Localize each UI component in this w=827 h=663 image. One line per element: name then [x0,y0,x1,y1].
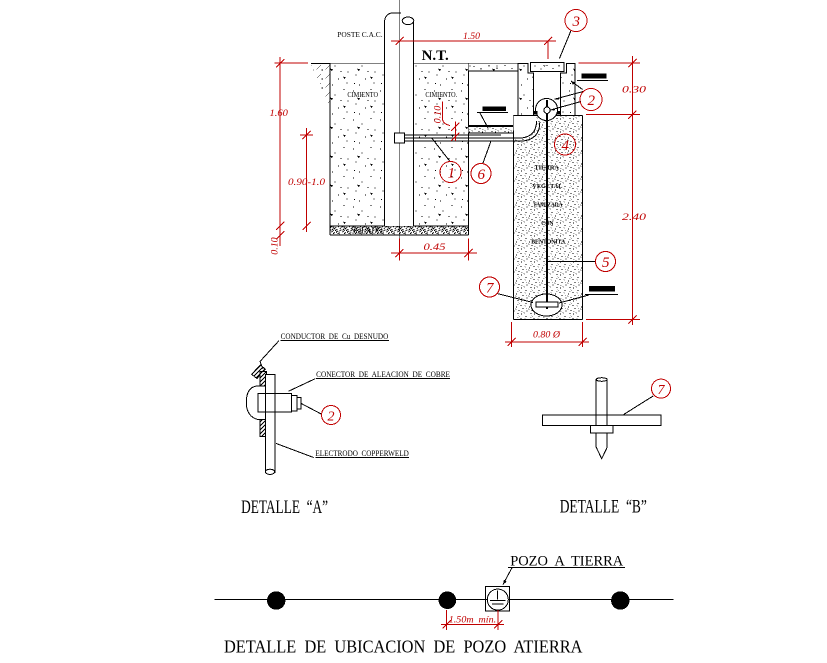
svg-text:0.45: 0.45 [424,243,446,253]
svg-text:CIMIENTO: CIMIENTO [347,90,378,99]
svg-text:BENTONITA: BENTONITA [531,238,565,245]
svg-text:6: 6 [478,167,486,183]
svg-text:0.80 Ø: 0.80 Ø [533,331,561,341]
svg-text:1.60: 1.60 [270,109,289,119]
svg-text:1.50m mín.: 1.50m mín. [449,616,496,626]
svg-text:DETALLE DE UBICACION DE PO: DETALLE DE UBICACION DE POZO ATIERRA [224,637,583,657]
svg-text:POSTE C.A.C.: POSTE C.A.C. [337,32,383,39]
svg-text:0.10: 0.10 [433,105,443,123]
svg-text:CONDUCTOR DE Cu DESNUDO: CONDUCTOR DE Cu DESNUDO [281,331,389,341]
svg-text:2: 2 [328,410,335,425]
svg-text:ELECTRODO COPPERWELD: ELECTRODO COPPERWELD [315,448,408,458]
svg-text:0.90-1.0: 0.90-1.0 [288,178,325,188]
svg-text:5: 5 [602,255,610,271]
svg-text:N.T.: N.T. [422,48,449,64]
svg-text:SOLADO: SOLADO [351,226,383,236]
svg-text:1: 1 [448,166,456,182]
svg-text:2.40: 2.40 [622,213,646,223]
svg-text:0.10: 0.10 [271,237,281,255]
svg-text:DETALLE “A”: DETALLE “A” [241,497,328,518]
svg-text:CIMIENTO.: CIMIENTO. [425,90,457,99]
svg-text:CONECTOR DE ALEACION DE CO: CONECTOR DE ALEACION DE COBRE [316,369,450,379]
svg-text:0.30: 0.30 [622,86,646,96]
svg-text:2: 2 [588,93,596,109]
svg-text:7: 7 [486,281,495,297]
svg-text:3: 3 [572,14,581,30]
svg-text:7: 7 [658,383,666,398]
svg-text:4: 4 [562,138,570,154]
svg-text:DETALLE “B”: DETALLE “B” [560,497,647,518]
svg-text:1.50: 1.50 [463,32,480,42]
